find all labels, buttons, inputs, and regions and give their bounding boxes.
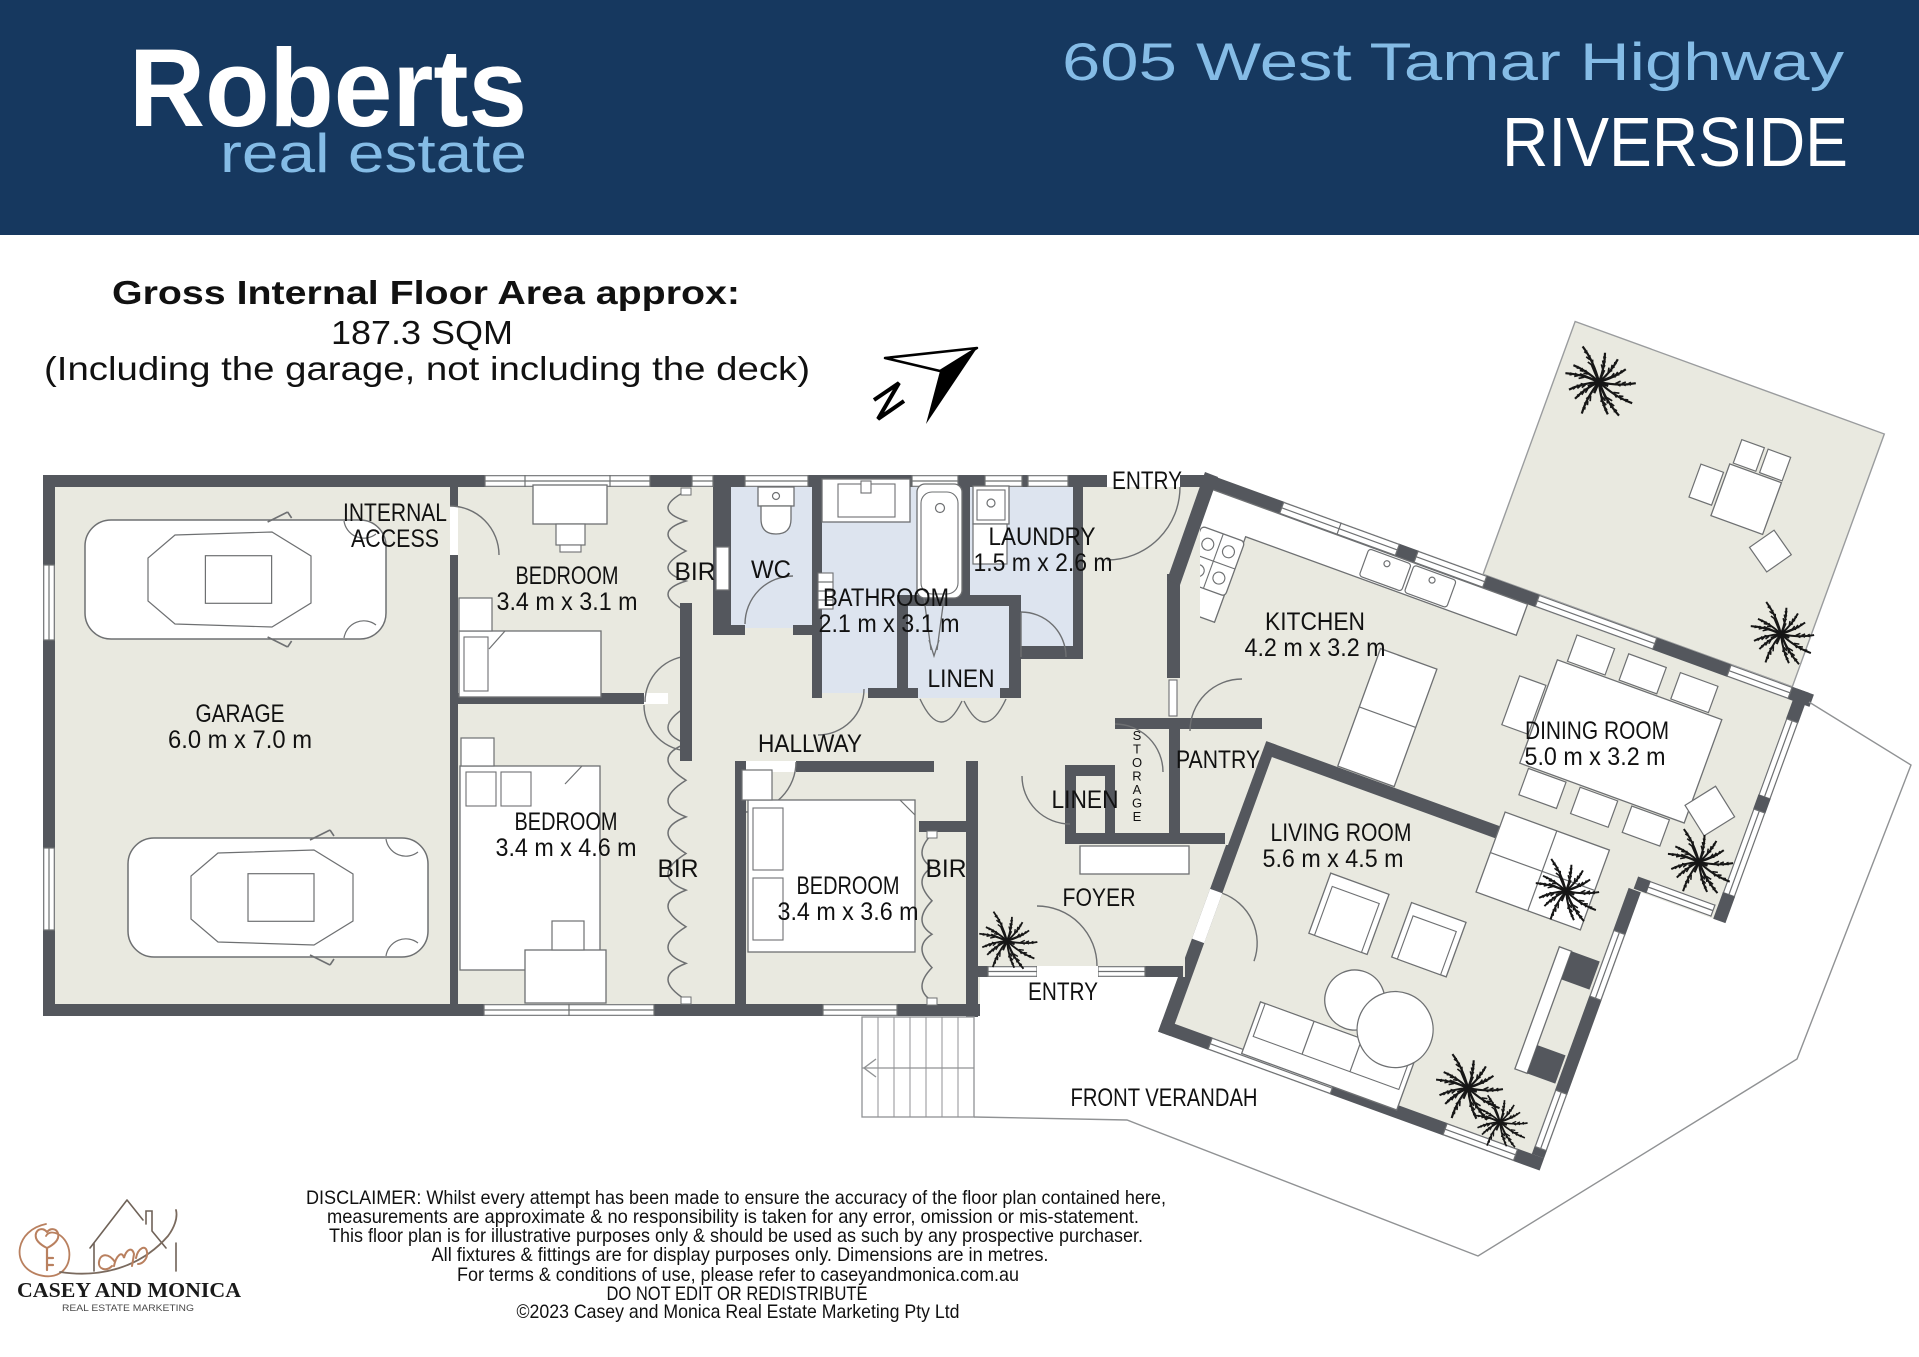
svg-text:LINEN: LINEN xyxy=(1052,786,1119,814)
svg-text:3.4 m x 4.6 m: 3.4 m x 4.6 m xyxy=(496,834,637,862)
svg-text:ENTRY: ENTRY xyxy=(1028,978,1098,1006)
svg-text:187.3 SQM: 187.3 SQM xyxy=(331,314,513,351)
svg-text:PANTRY: PANTRY xyxy=(1176,746,1260,774)
svg-text:6.0 m x 7.0 m: 6.0 m x 7.0 m xyxy=(168,726,312,754)
svg-text:5.6 m x 4.5 m: 5.6 m x 4.5 m xyxy=(1263,845,1404,873)
svg-text:(Including the garage, not inc: (Including the garage, not including the… xyxy=(44,350,810,387)
svg-text:HALLWAY: HALLWAY xyxy=(758,730,862,758)
svg-text:real estate: real estate xyxy=(220,122,527,184)
svg-text:FOYER: FOYER xyxy=(1063,884,1136,912)
svg-text:GARAGE: GARAGE xyxy=(196,700,285,728)
svg-text:DINING ROOM: DINING ROOM xyxy=(1525,717,1669,745)
svg-text:5.0 m x 3.2 m: 5.0 m x 3.2 m xyxy=(1525,743,1666,771)
svg-text:BATHROOM: BATHROOM xyxy=(823,584,949,612)
svg-text:BIR: BIR xyxy=(675,558,716,586)
svg-text:LAUNDRY: LAUNDRY xyxy=(989,523,1096,551)
svg-text:CASEY AND MONICA: CASEY AND MONICA xyxy=(17,1278,241,1302)
svg-text:2.1 m x 3.1 m: 2.1 m x 3.1 m xyxy=(819,610,960,638)
svg-text:REAL ESTATE MARKETING: REAL ESTATE MARKETING xyxy=(62,1303,194,1314)
svg-text:BEDROOM: BEDROOM xyxy=(516,562,619,590)
svg-text:WC: WC xyxy=(751,556,791,584)
svg-text:BEDROOM: BEDROOM xyxy=(515,808,618,836)
svg-text:605 West Tamar Highway: 605 West Tamar Highway xyxy=(1062,33,1845,92)
svg-text:KITCHEN: KITCHEN xyxy=(1265,608,1365,636)
svg-text:Gross Internal Floor Area appr: Gross Internal Floor Area approx: xyxy=(112,274,740,311)
svg-text:BIR: BIR xyxy=(658,855,699,883)
svg-text:3.4 m x 3.1 m: 3.4 m x 3.1 m xyxy=(497,588,638,616)
svg-text:BEDROOM: BEDROOM xyxy=(797,872,900,900)
svg-text:INTERNAL: INTERNAL xyxy=(343,499,447,527)
svg-text:BIR: BIR xyxy=(926,855,967,883)
svg-text:RIVERSIDE: RIVERSIDE xyxy=(1502,103,1848,181)
svg-text:©2023 Casey and Monica Real Es: ©2023 Casey and Monica Real Estate Marke… xyxy=(517,1301,960,1323)
svg-text:All fixtures & fittings are fo: All fixtures & fittings are for display … xyxy=(432,1244,1049,1266)
svg-text:LINEN: LINEN xyxy=(928,665,995,693)
svg-text:ACCESS: ACCESS xyxy=(351,525,439,553)
svg-text:1.5 m x 2.6 m: 1.5 m x 2.6 m xyxy=(974,549,1113,577)
svg-text:ENTRY: ENTRY xyxy=(1112,467,1182,495)
svg-text:LIVING ROOM: LIVING ROOM xyxy=(1271,819,1412,847)
svg-text:FRONT VERANDAH: FRONT VERANDAH xyxy=(1071,1084,1258,1112)
svg-text:3.4 m x 3.6 m: 3.4 m x 3.6 m xyxy=(778,898,919,926)
svg-text:E: E xyxy=(1133,809,1142,824)
svg-text:4.2 m x 3.2 m: 4.2 m x 3.2 m xyxy=(1245,634,1386,662)
